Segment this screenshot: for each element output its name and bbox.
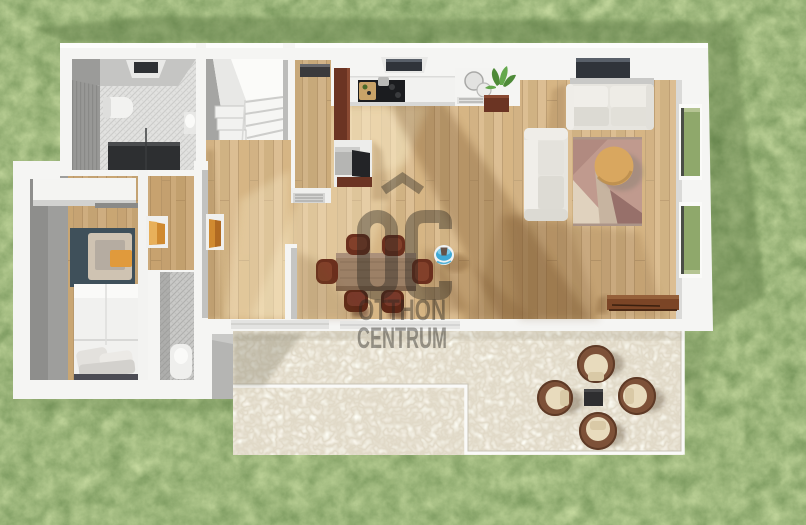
- svg-text:CENTRUM: CENTRUM: [357, 322, 447, 355]
